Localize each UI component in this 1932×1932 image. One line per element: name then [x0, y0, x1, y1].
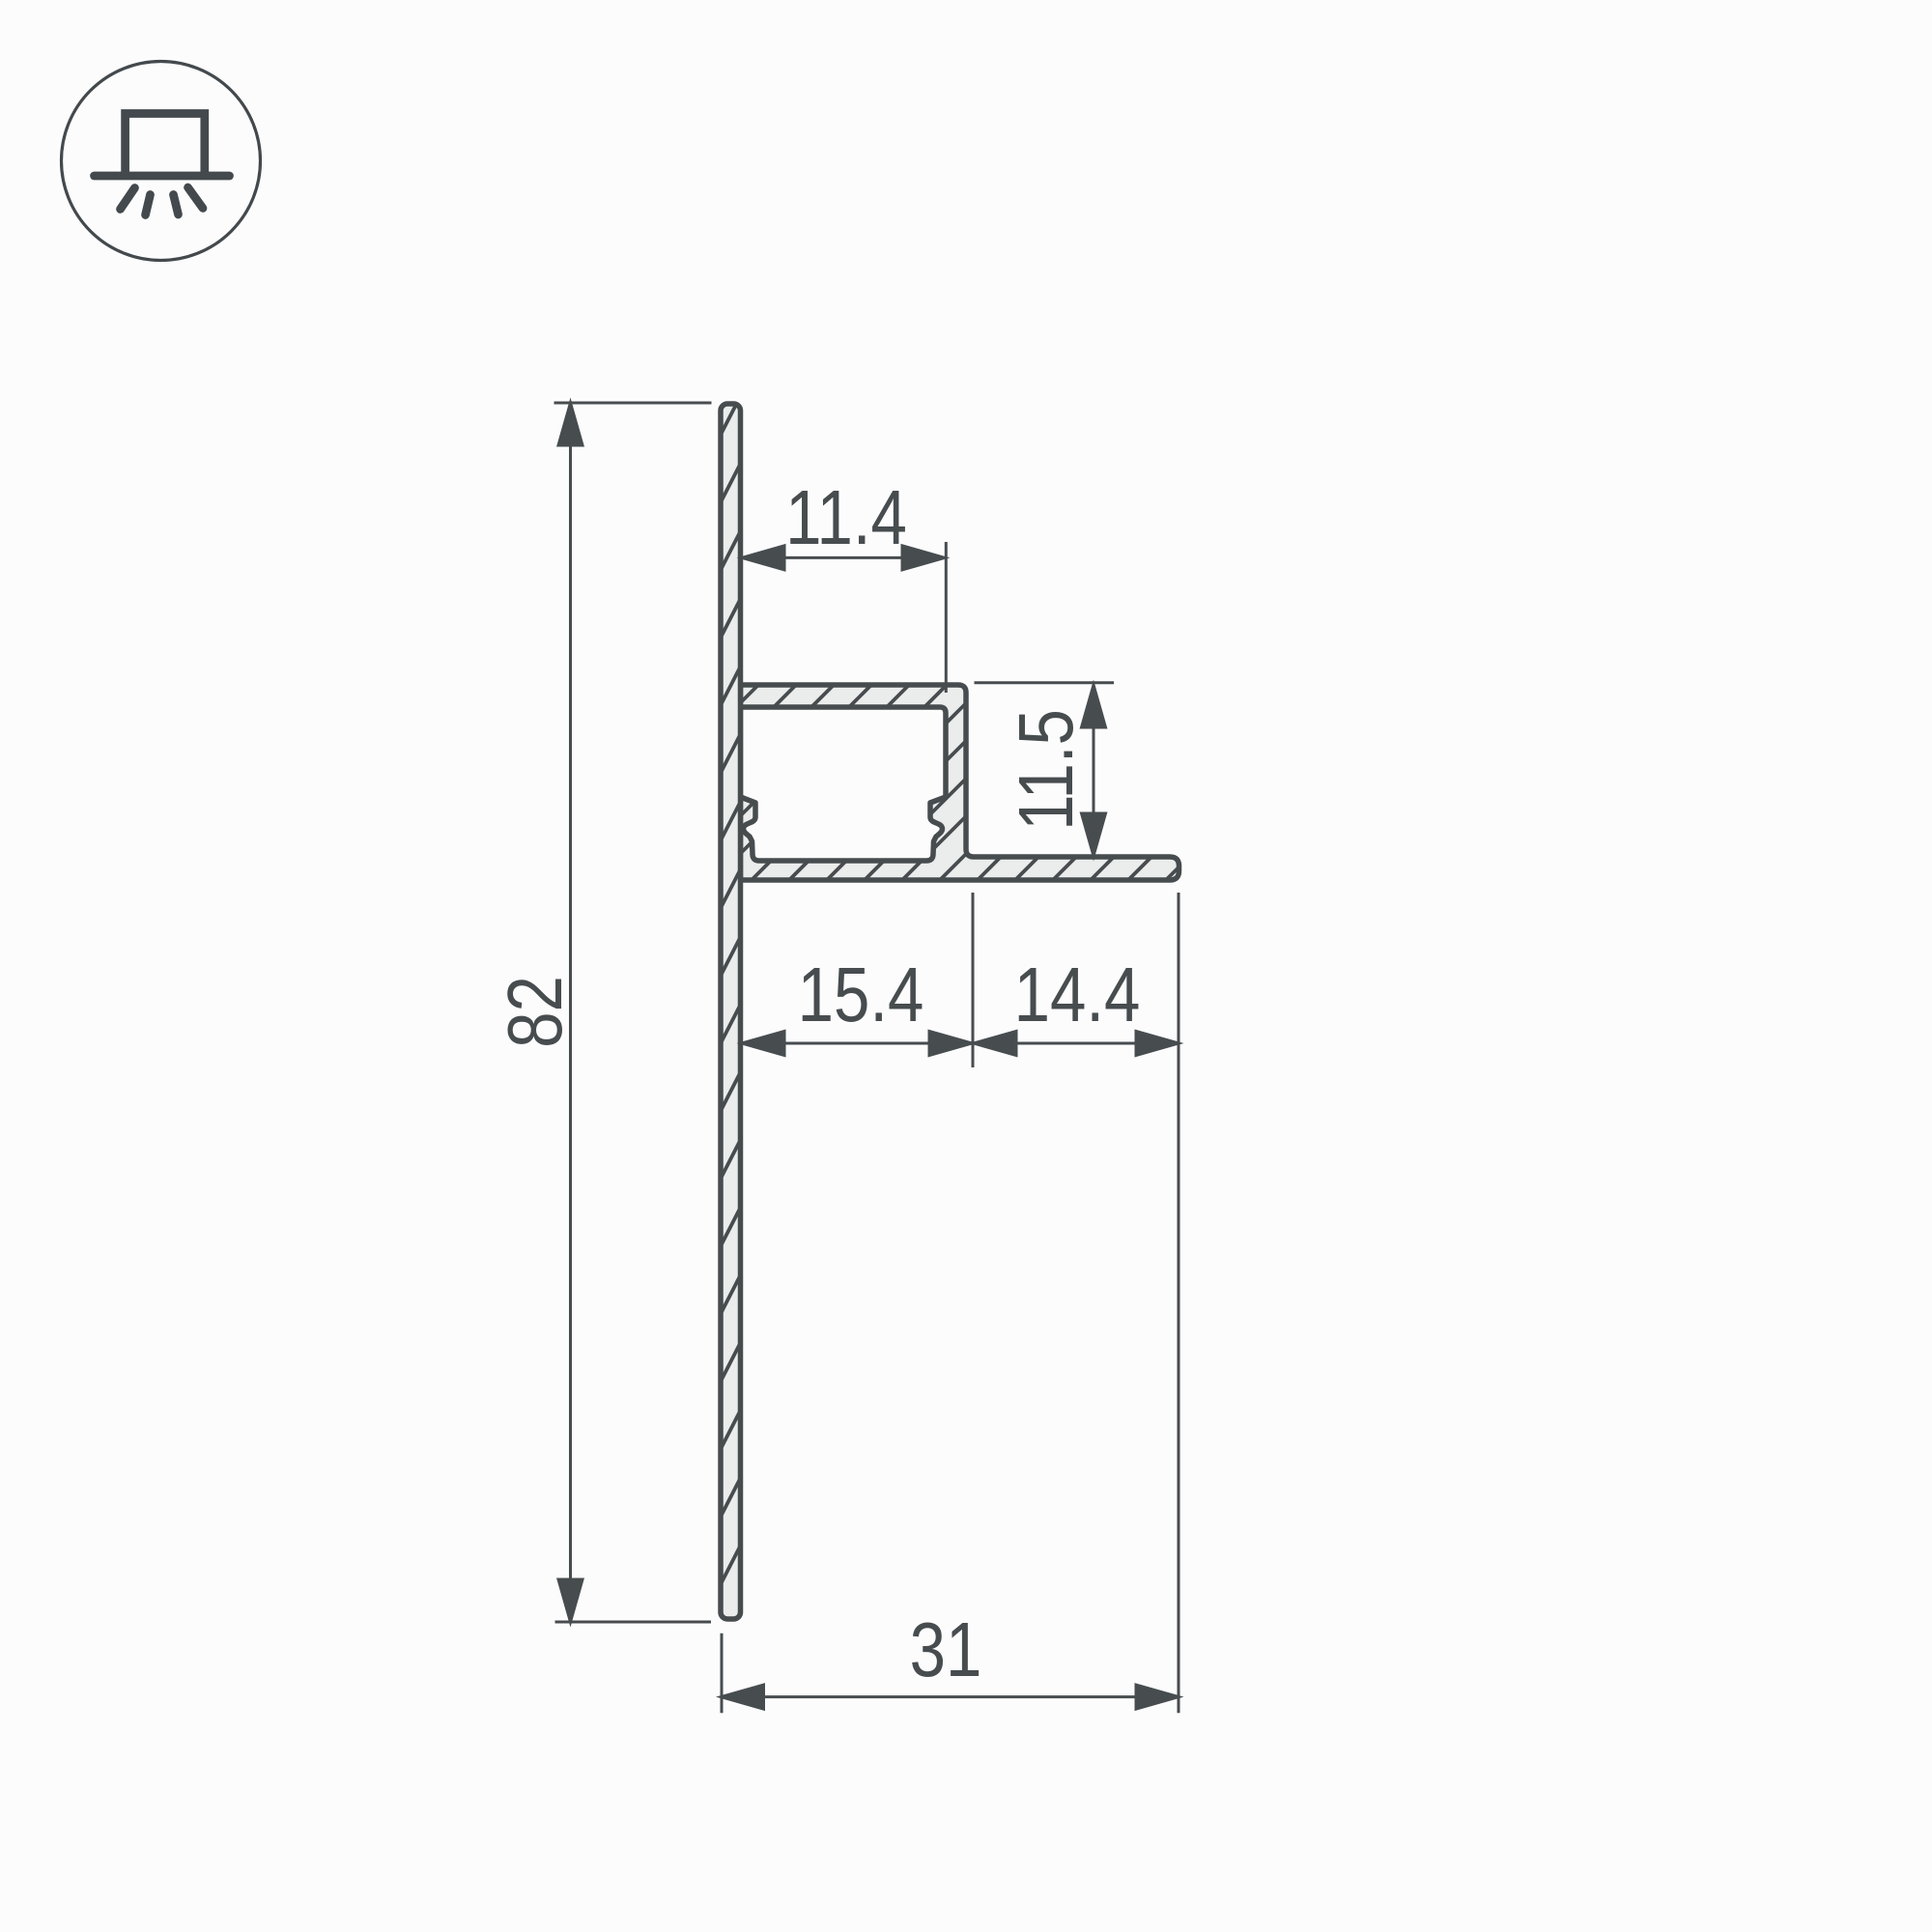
svg-text:15.4: 15.4	[798, 951, 924, 1037]
svg-text:14.4: 14.4	[1014, 951, 1141, 1037]
svg-text:11.4: 11.4	[785, 473, 907, 560]
svg-text:11.5: 11.5	[1002, 709, 1089, 831]
svg-text:82: 82	[491, 976, 578, 1048]
svg-text:31: 31	[910, 1605, 982, 1692]
